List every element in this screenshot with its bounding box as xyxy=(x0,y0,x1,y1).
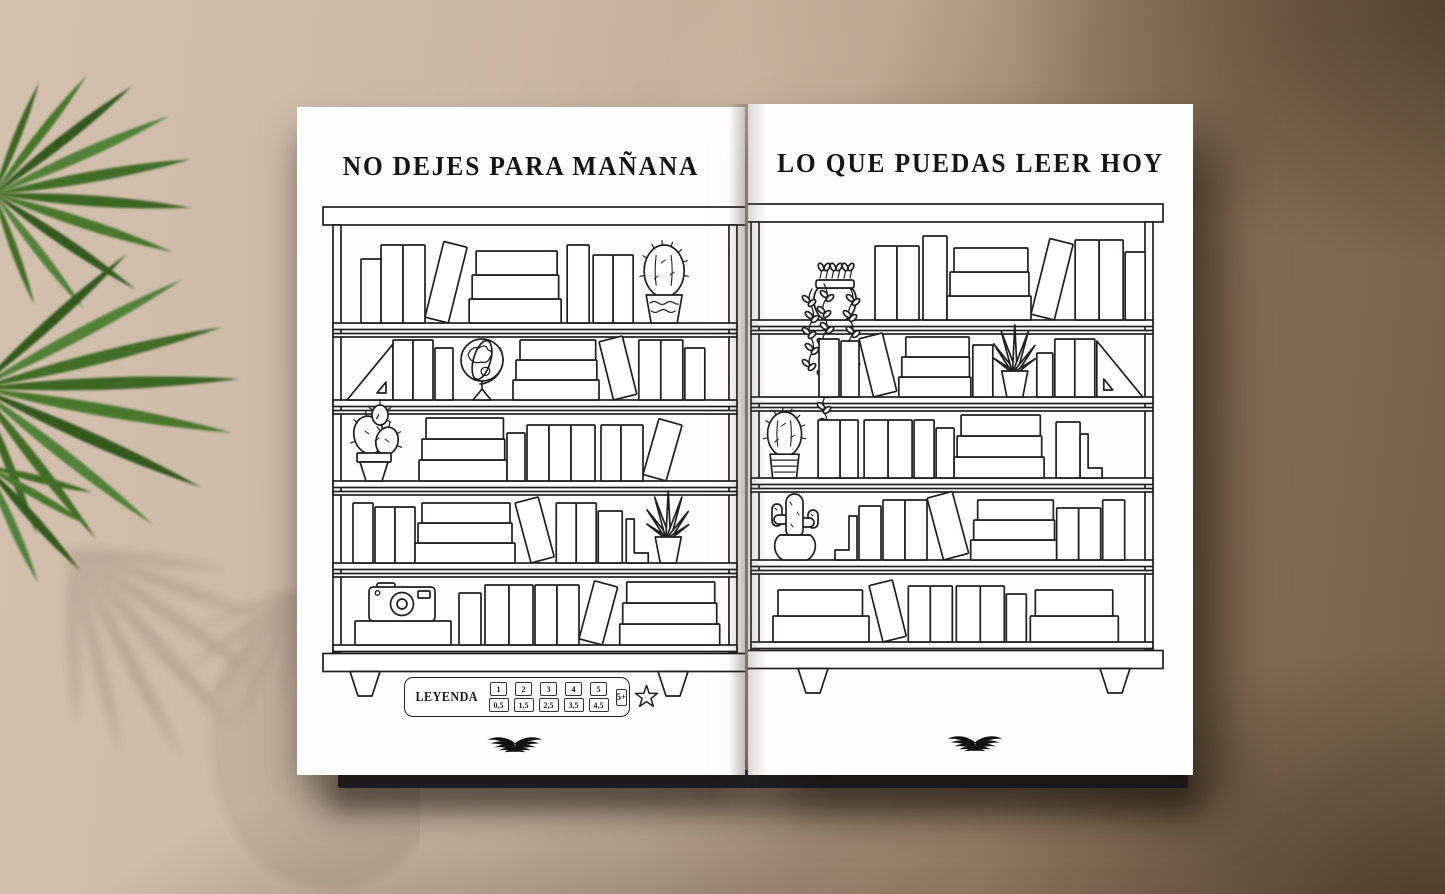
legend-cell-whole: 2 xyxy=(515,682,532,696)
photo-mockup-reading-journal: NO DEJES PARA MAÑANA LEYENDA 1 0,5 2 1,5… xyxy=(0,0,1445,894)
palm-plant xyxy=(0,36,306,596)
legend-cell-half: 1,5 xyxy=(514,698,534,712)
legend-pair: 1 0,5 xyxy=(489,682,509,713)
legend-cell-half: 4,5 xyxy=(589,698,609,712)
legend-pair: 2 1,5 xyxy=(514,682,534,713)
legend-pair: 3 2,5 xyxy=(539,682,559,713)
legend-cell-5plus: 5+ xyxy=(616,689,628,706)
legend-cell-half: 2,5 xyxy=(539,698,559,712)
legend-label: LEYENDA xyxy=(415,689,478,705)
wings-logo-icon xyxy=(486,733,544,759)
legend-cell-whole: 5 xyxy=(590,682,607,696)
wings-logo-icon xyxy=(946,732,1004,758)
legend-cell-half: 0,5 xyxy=(489,698,509,712)
page-left: NO DEJES PARA MAÑANA LEYENDA 1 0,5 2 1,5… xyxy=(297,107,745,775)
legend-cell-whole: 3 xyxy=(540,682,557,696)
page-right: LO QUE PUEDAS LEER HOY xyxy=(748,104,1193,775)
legend-cell-whole: 4 xyxy=(565,682,582,696)
legend-pair: 5 4,5 xyxy=(589,682,609,713)
legend-cell-half: 3,5 xyxy=(564,698,584,712)
bookshelf-illustration-right xyxy=(748,104,1193,775)
star-icon xyxy=(634,684,660,710)
legend-cells: 1 0,5 2 1,5 3 2,5 4 3,5 5 4,5 xyxy=(489,682,609,713)
bookshelf-illustration-left xyxy=(297,107,745,775)
legend-pair: 4 3,5 xyxy=(564,682,584,713)
legend-box: LEYENDA 1 0,5 2 1,5 3 2,5 4 3,5 5 4,5 5+ xyxy=(404,677,630,717)
legend-cell-whole: 1 xyxy=(490,682,507,696)
